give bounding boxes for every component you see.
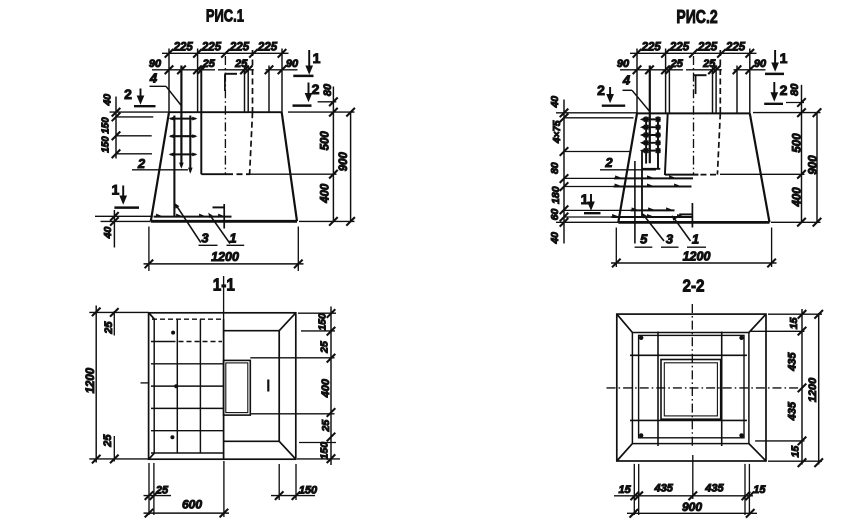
svg-text:4: 4 [149, 70, 158, 85]
svg-text:1: 1 [112, 181, 120, 197]
svg-text:500: 500 [319, 131, 331, 151]
svg-text:90: 90 [286, 58, 299, 70]
svg-text:25: 25 [318, 341, 330, 354]
svg-text:225: 225 [697, 42, 718, 54]
svg-text:4: 4 [622, 72, 631, 87]
svg-text:1: 1 [313, 50, 321, 66]
svg-text:2: 2 [124, 86, 132, 102]
svg-text:25: 25 [670, 58, 684, 70]
svg-text:435: 435 [787, 401, 799, 421]
svg-text:400: 400 [320, 378, 332, 398]
svg-text:1200: 1200 [85, 367, 97, 393]
svg-text:60: 60 [549, 209, 561, 221]
svg-text:25: 25 [202, 58, 216, 70]
svg-text:2: 2 [780, 82, 788, 98]
svg-text:3: 3 [666, 232, 674, 247]
svg-text:225: 225 [725, 42, 746, 54]
svg-text:90: 90 [617, 58, 630, 70]
svg-text:15: 15 [753, 484, 766, 496]
svg-text:2-2: 2-2 [682, 275, 704, 295]
svg-text:400: 400 [792, 187, 804, 208]
svg-text:25: 25 [702, 58, 716, 70]
svg-text:150: 150 [317, 313, 329, 331]
svg-text:15: 15 [788, 317, 800, 329]
svg-text:150: 150 [101, 117, 112, 134]
svg-text:900: 900 [682, 500, 702, 514]
svg-text:180: 180 [550, 186, 562, 204]
svg-text:225: 225 [201, 42, 222, 54]
svg-text:435: 435 [704, 482, 724, 494]
svg-text:1: 1 [692, 232, 699, 247]
svg-text:1200: 1200 [807, 377, 819, 402]
svg-text:25: 25 [320, 420, 332, 433]
svg-text:5: 5 [640, 232, 648, 247]
svg-text:40: 40 [102, 94, 114, 107]
svg-text:400: 400 [319, 183, 331, 204]
svg-text:2: 2 [312, 81, 320, 97]
svg-text:150: 150 [299, 485, 318, 497]
svg-text:2: 2 [604, 155, 613, 170]
svg-text:2: 2 [137, 156, 146, 171]
svg-text:25: 25 [155, 485, 169, 497]
svg-text:900: 900 [808, 155, 820, 175]
svg-text:435: 435 [654, 482, 674, 494]
svg-text:600: 600 [182, 498, 202, 512]
svg-text:40: 40 [549, 232, 561, 245]
svg-text:225: 225 [669, 42, 690, 54]
svg-text:40: 40 [102, 227, 114, 240]
svg-text:25: 25 [103, 321, 115, 335]
svg-text:1: 1 [229, 231, 236, 246]
svg-text:435: 435 [787, 352, 799, 372]
svg-text:90: 90 [754, 58, 767, 70]
svg-text:15: 15 [789, 446, 801, 458]
svg-text:150: 150 [318, 442, 330, 460]
svg-text:80: 80 [789, 83, 801, 96]
svg-text:25: 25 [102, 434, 114, 448]
svg-text:РИС.2: РИС.2 [676, 7, 717, 27]
svg-text:80: 80 [549, 162, 561, 174]
svg-text:1200: 1200 [211, 250, 239, 264]
svg-text:150: 150 [101, 136, 112, 153]
svg-text:1200: 1200 [683, 249, 711, 263]
svg-text:1: 1 [780, 50, 788, 66]
svg-text:РИС.1: РИС.1 [206, 7, 244, 27]
svg-text:25: 25 [234, 58, 248, 70]
svg-text:90: 90 [149, 58, 162, 70]
svg-text:15: 15 [618, 484, 631, 496]
svg-text:4×75: 4×75 [552, 120, 563, 144]
svg-text:900: 900 [338, 152, 350, 172]
svg-text:225: 225 [257, 42, 278, 54]
svg-text:1: 1 [581, 191, 589, 207]
svg-text:225: 225 [641, 42, 662, 54]
svg-text:2: 2 [597, 82, 605, 98]
svg-text:3: 3 [201, 231, 209, 246]
svg-text:500: 500 [792, 133, 804, 153]
svg-text:40: 40 [549, 96, 561, 109]
svg-text:80: 80 [322, 83, 334, 96]
svg-text:225: 225 [229, 42, 250, 54]
svg-text:225: 225 [173, 42, 194, 54]
